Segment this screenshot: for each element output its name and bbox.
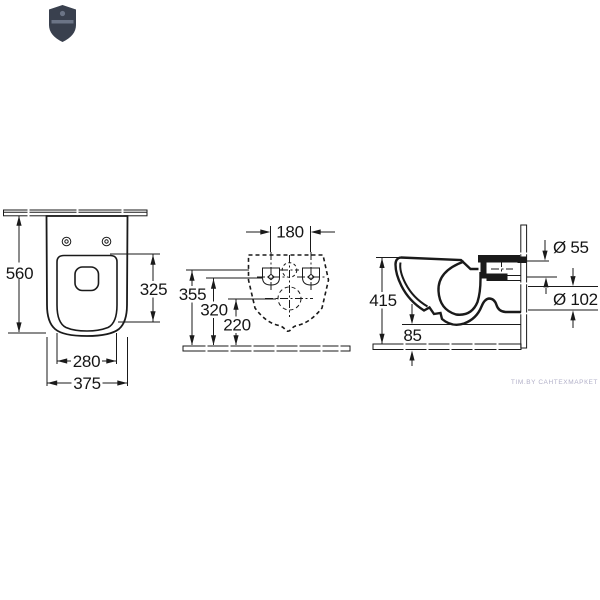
side-view: 415 85 Ø 55 (368, 225, 599, 366)
crest-band (52, 20, 74, 24)
dim-180: 180 (246, 223, 335, 253)
dim-85: 85 (402, 304, 521, 366)
dim-label-220: 220 (223, 316, 250, 335)
dim-label-180: 180 (276, 223, 303, 242)
outlet-connector-bar (487, 274, 508, 282)
dim-label-280: 280 (73, 352, 100, 371)
dim-label-85: 85 (403, 326, 421, 345)
dim-220: 220 (222, 299, 277, 345)
flush-pipe-vertical (481, 263, 487, 279)
flush-connector-bar (478, 255, 520, 263)
dim-label-325: 325 (140, 280, 167, 299)
fixing-hole-right (102, 237, 111, 246)
dim-560: 560 (5, 216, 46, 333)
wall-band (520, 225, 528, 348)
rear-view: 180 355 320 220 (177, 223, 350, 353)
crest-dot (60, 11, 65, 16)
fixing-hole-left (62, 237, 71, 246)
bowl-opening-outline (75, 267, 99, 291)
brand-crest-logo (49, 5, 76, 42)
technical-drawing: 560 325 280 (0, 0, 600, 600)
dim-label-375: 375 (73, 374, 100, 393)
dim-320: 320 (199, 278, 263, 345)
floor-band-side (373, 343, 521, 351)
rear-body-dashed-outline (249, 255, 329, 331)
drawing-page: 560 325 280 (0, 0, 600, 600)
watermark-text: TIM.BY САНТЕХМАРКЕТ (511, 379, 598, 386)
floor-band-rear (183, 345, 350, 352)
dim-280: 280 (57, 333, 117, 371)
top-view: 560 325 280 (4, 209, 169, 393)
dim-label-d102: Ø 102 (553, 290, 598, 309)
dim-label-560: 560 (6, 264, 33, 283)
dim-label-415: 415 (369, 291, 396, 310)
dim-label-d55: Ø 55 (553, 238, 589, 257)
dim-d55: Ø 55 (527, 238, 589, 294)
dim-325: 325 (110, 254, 169, 322)
